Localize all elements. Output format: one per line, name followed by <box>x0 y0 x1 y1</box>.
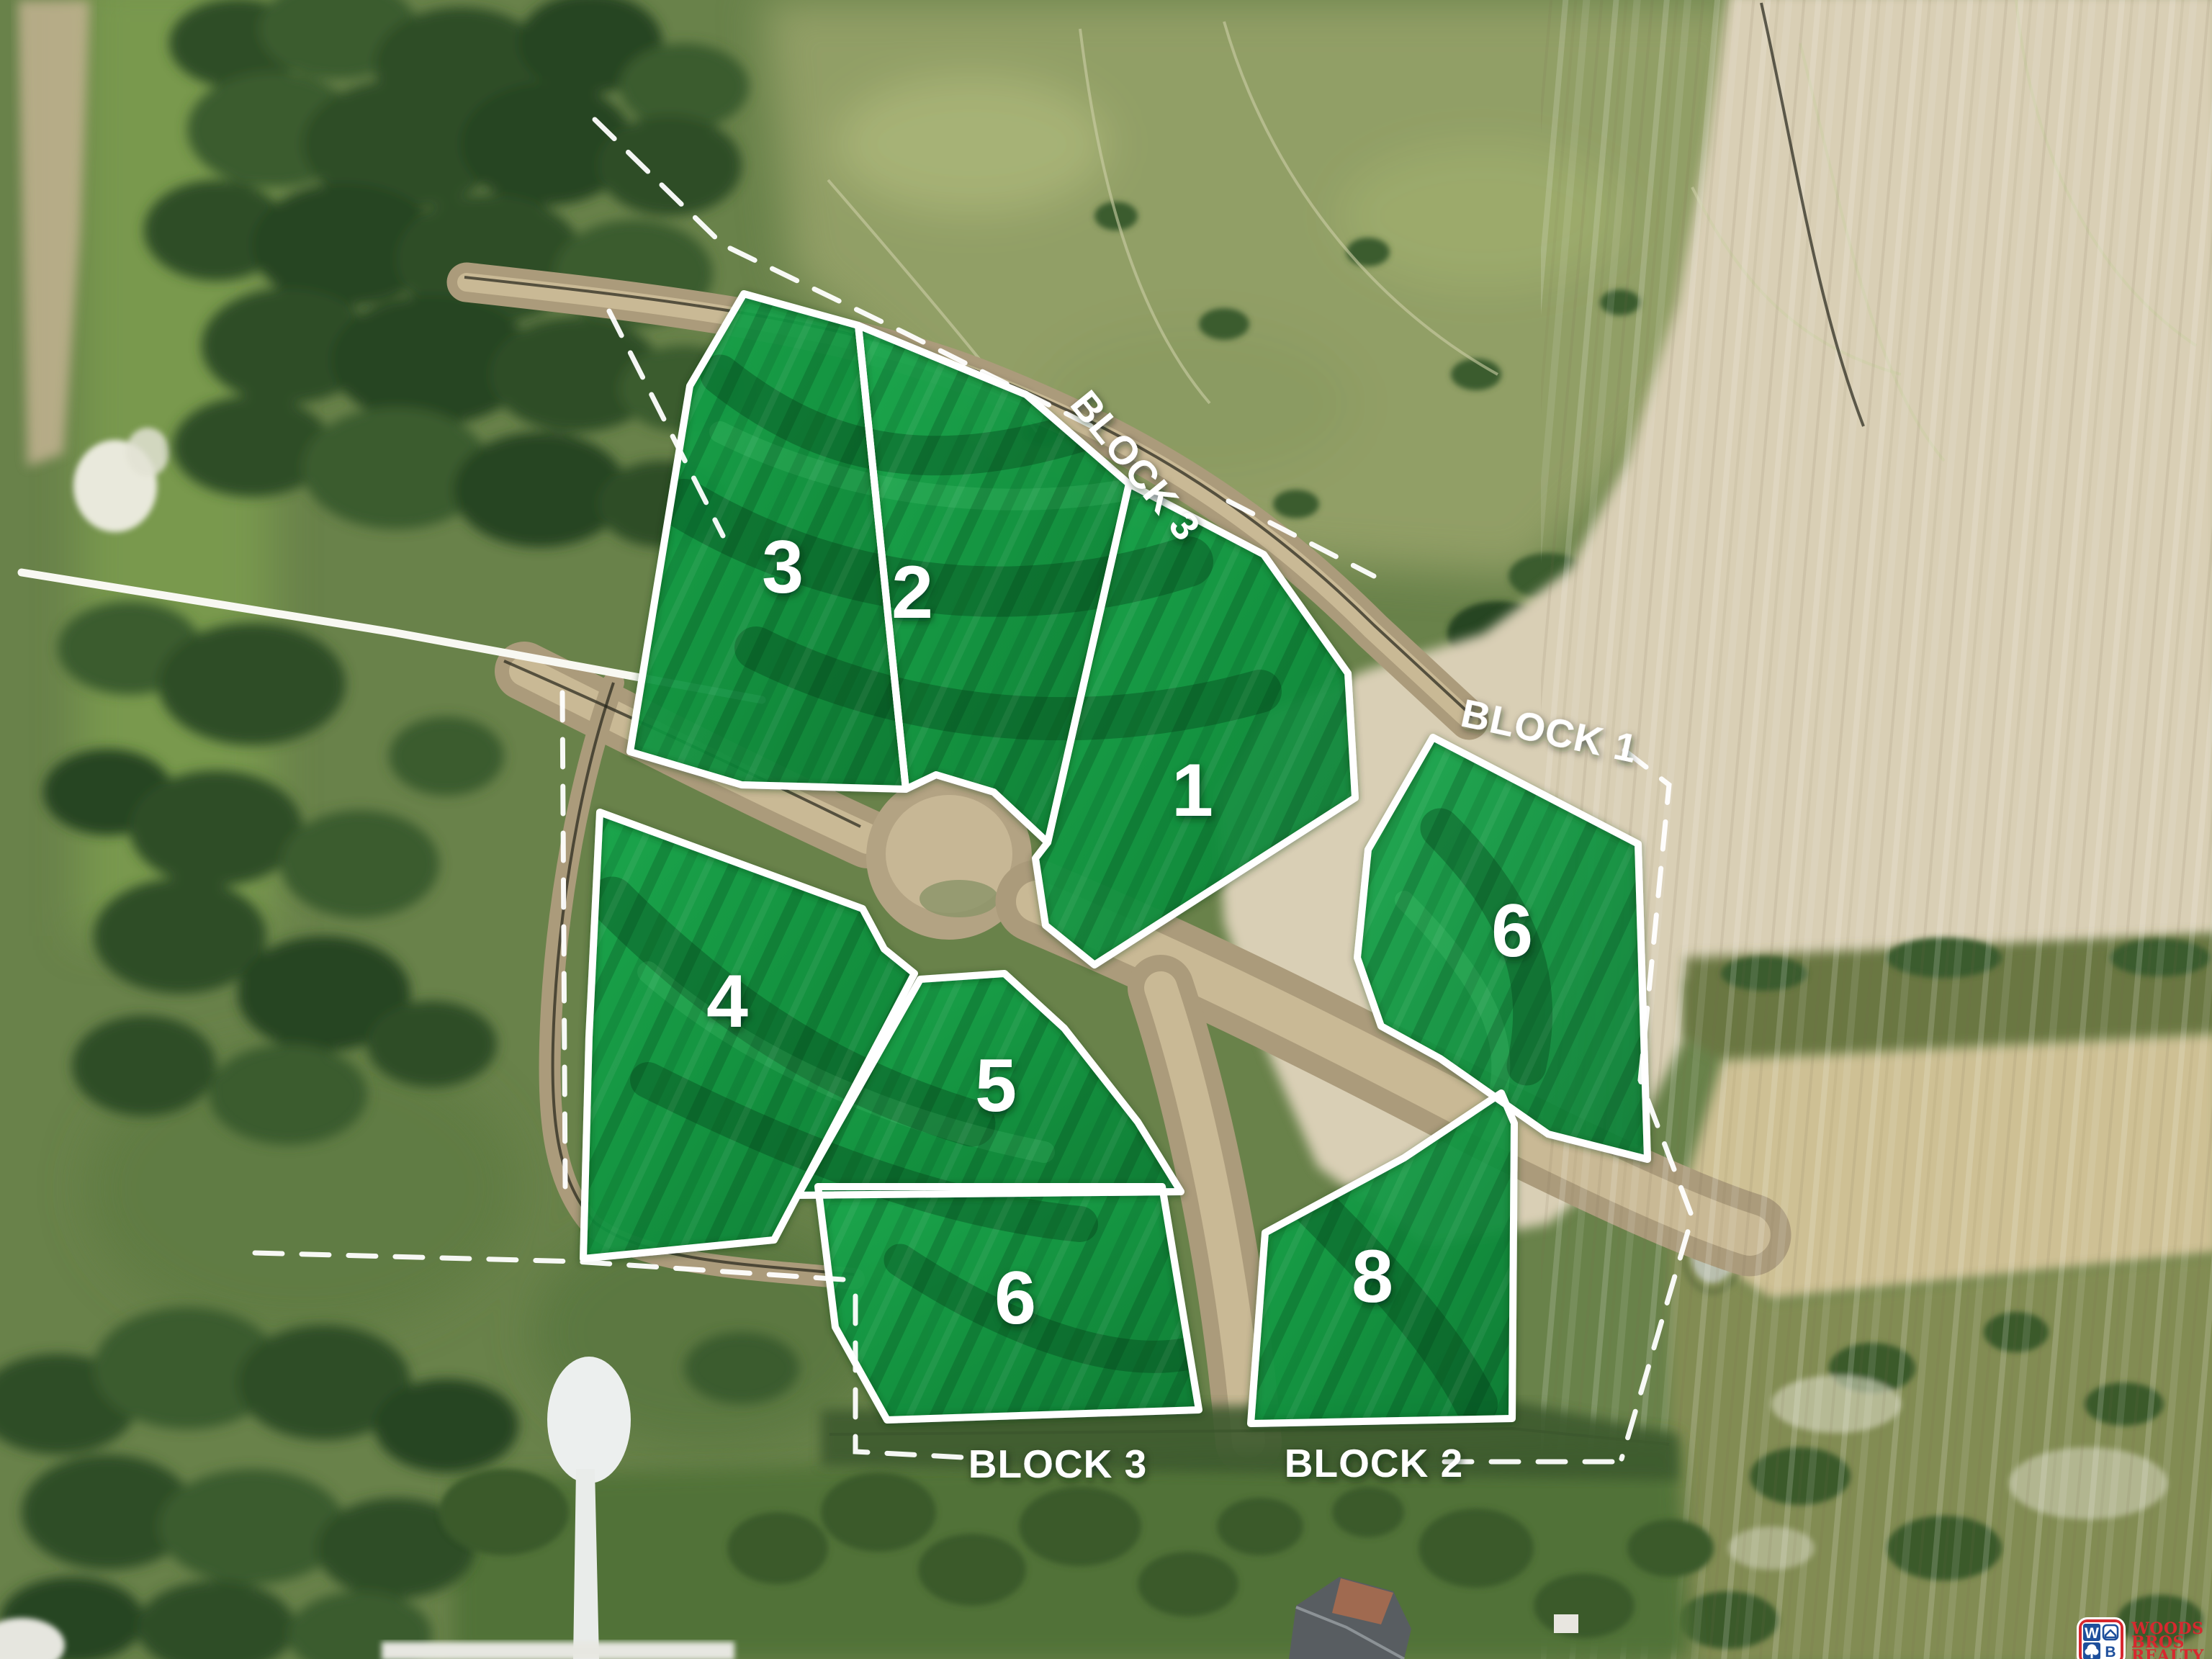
dashed-line-west <box>562 693 565 1187</box>
lot-number-label: 4 <box>706 960 748 1043</box>
aerial-plat-map: 3 2 1 4 5 6 6 8 BLOCK 3 BLOCK 1 BLOCK 3 … <box>0 0 2212 1659</box>
lot-number-label: 6 <box>1491 889 1533 973</box>
lot-number-label: 2 <box>891 551 933 634</box>
logo-monogram: W B <box>2077 1617 2126 1659</box>
lot-number-label: 8 <box>1352 1235 1393 1318</box>
lot-number-label: 5 <box>975 1044 1017 1128</box>
shed <box>1554 1614 1578 1633</box>
monogram-letter-w: W <box>2085 1625 2099 1642</box>
lot-number-label: 3 <box>762 526 804 609</box>
logo-word-realty: REALTY <box>2131 1647 2204 1659</box>
lot-number-label: 6 <box>994 1256 1036 1340</box>
block-2-label: BLOCK 2 <box>1285 1441 1463 1485</box>
dirt-texture <box>1541 0 2212 1659</box>
block-3-bottom-label: BLOCK 3 <box>968 1442 1147 1486</box>
tree-canopy-top-left <box>144 0 749 547</box>
monogram-letter-b: B <box>2105 1644 2116 1659</box>
lot-number-label: 1 <box>1172 749 1213 832</box>
